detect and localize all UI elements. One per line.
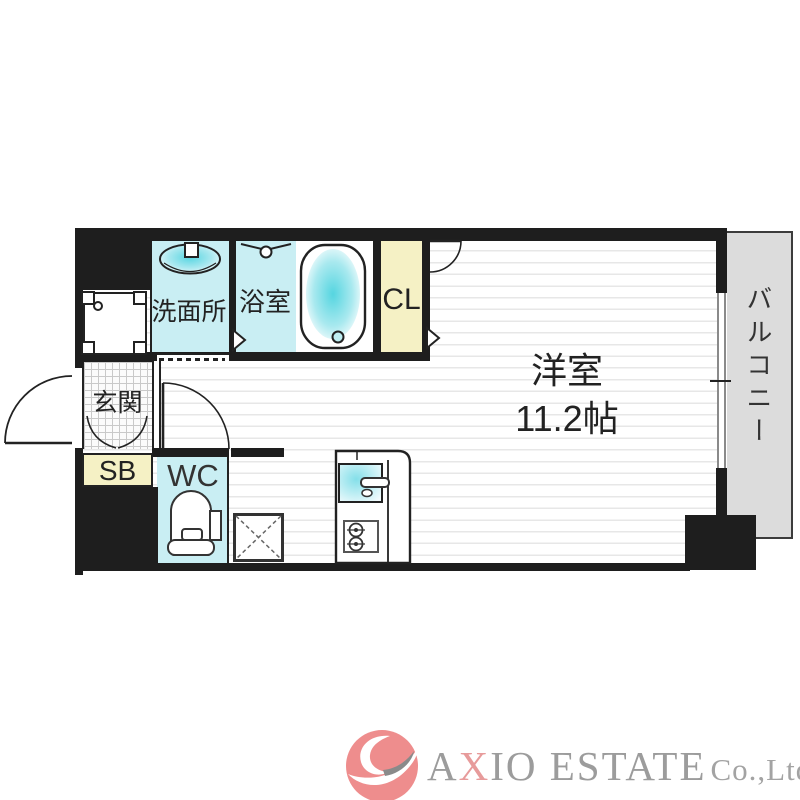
wall-right-upper: [716, 240, 727, 293]
wall-bottomleft-block: [75, 487, 158, 570]
washer-pan-corner: [133, 291, 147, 305]
wall-top: [75, 228, 727, 241]
logo-text-rest: IO ESTATE: [490, 743, 706, 789]
toilet-tank: [167, 539, 215, 556]
label-main-room-name: 洋室: [467, 347, 667, 395]
wall-bottomright-block: [685, 515, 756, 570]
label-main-room: 洋室 11.2帖: [467, 347, 667, 443]
wall-entrance-top: [82, 356, 160, 362]
label-shoebox: SB: [82, 455, 153, 487]
washer-pan-drain: [93, 301, 103, 311]
logo-mark: [344, 728, 422, 800]
label-balcony: バルコニー: [742, 262, 772, 472]
balcony-window: [717, 293, 726, 468]
label-washroom: 洗面所: [146, 298, 232, 327]
floorplan: 洗面所 浴室 CL 洋室 11.2帖 バルコニー 玄関 SB WC AXIO E…: [0, 0, 800, 800]
entrance-door-arc: [5, 376, 72, 443]
washroom-sliding-door: [157, 353, 229, 361]
toilet-paper-holder: [209, 510, 222, 541]
logo-text-suffix: Co.,Ltd: [711, 752, 800, 787]
room-bathtub-area: [296, 240, 373, 352]
logo-text-x: X: [459, 743, 491, 789]
room-washroom: [150, 240, 229, 353]
washer-pan-corner: [133, 341, 147, 355]
label-main-room-size: 11.2帖: [467, 395, 667, 443]
wall-right-lower: [716, 468, 727, 515]
washer-pan-corner: [81, 341, 95, 355]
label-entrance: 玄関: [84, 389, 151, 418]
fridge-space: [233, 513, 284, 562]
wall-hall-stub: [231, 448, 284, 457]
logo-text-a: A: [427, 743, 459, 789]
wall-entrance-right: [152, 361, 161, 451]
wall-bottom: [75, 563, 690, 571]
logo-text: AXIO ESTATECo.,Ltd: [427, 742, 800, 790]
wall-wc-top: [152, 448, 229, 457]
label-wc: WC: [157, 458, 229, 494]
label-bath: 浴室: [234, 288, 296, 318]
wall-topleft-block: [75, 228, 152, 290]
label-closet: CL: [379, 283, 424, 318]
